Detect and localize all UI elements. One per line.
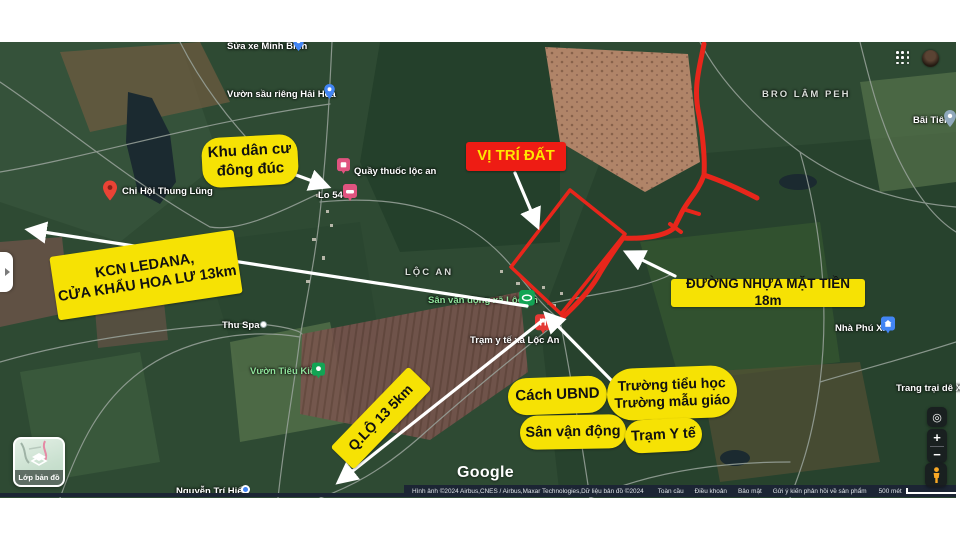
zoom-in-button[interactable]: + bbox=[927, 429, 947, 446]
callout-truong: Trường tiểu học Trường mẫu giáo bbox=[606, 365, 738, 422]
map-screenshot: Sửa xe Minh Bình Vườn sầu riêng Hải Hoa … bbox=[0, 0, 960, 540]
google-logo: Google bbox=[457, 464, 514, 482]
stadium-pin-icon[interactable] bbox=[519, 290, 535, 309]
callout-duong-nhua-label: ĐƯỜNG NHỰA MẶT TIỀN 18m bbox=[671, 276, 865, 310]
area-label-bro-lam-peh: BRO LÂM PEH bbox=[762, 89, 851, 100]
poi-label-chi-hoi[interactable]: Chi Hội Thung Lũng bbox=[122, 186, 213, 197]
area-label-loc-an: LỘC AN bbox=[405, 267, 453, 278]
pegman-button[interactable] bbox=[925, 463, 947, 487]
zoom-control: + − bbox=[927, 429, 947, 463]
callout-tram-y-te-label: Trạm Y tế bbox=[631, 425, 697, 446]
attribution-bar: Hình ảnh ©2024 Airbus,CNES / Airbus,Maxa… bbox=[404, 485, 956, 497]
poi-label-quay-thuoc[interactable]: Quầy thuốc lộc an bbox=[354, 166, 436, 177]
callout-vi-tri-dat-label: VỊ TRÍ ĐẤT bbox=[477, 147, 555, 166]
top-white-band bbox=[0, 0, 960, 42]
scale-label: 500 mét bbox=[879, 488, 902, 495]
callout-khu-dan-cu-line2: đông đúc bbox=[216, 159, 284, 181]
red-pin-icon[interactable] bbox=[103, 180, 117, 201]
callout-khu-dan-cu: Khu dân cư đông đúc bbox=[201, 134, 299, 189]
poi-label-thu-spa[interactable]: Thu Spa bbox=[222, 320, 259, 331]
callout-san-van-dong-label: Sân vận động bbox=[525, 422, 620, 442]
layers-control[interactable]: Lớp bản đồ bbox=[13, 437, 65, 487]
pharmacy-pin-icon[interactable] bbox=[337, 158, 350, 174]
pegman-icon bbox=[931, 467, 942, 484]
compass-icon: ◎ bbox=[932, 411, 942, 424]
garden-pin-icon[interactable] bbox=[324, 84, 335, 99]
hospital-pin-icon[interactable]: H bbox=[535, 314, 551, 334]
bottom-white-band bbox=[0, 498, 960, 540]
link-dieu-khoan[interactable]: Điều khoản bbox=[695, 488, 727, 495]
poi-label-tram-y-te-xa[interactable]: Trạm y tế xã Lộc An bbox=[470, 335, 559, 346]
bai-tien-pin-icon[interactable] bbox=[944, 110, 956, 127]
callout-cach-ubnd: Cách UBND bbox=[507, 375, 607, 415]
imagery-credit: Hình ảnh ©2024 Airbus,CNES / Airbus,Maxa… bbox=[412, 488, 644, 495]
poi-label-vuon-tieu-kieu[interactable]: Vườn Tiêu Kiều bbox=[250, 366, 321, 377]
my-location-button[interactable]: ◎ bbox=[927, 407, 947, 427]
layers-label: Lớp bản đồ bbox=[15, 470, 63, 485]
callout-san-van-dong: Sân vận động bbox=[520, 414, 627, 450]
chevron-right-icon bbox=[5, 268, 10, 276]
house-pin-icon[interactable] bbox=[881, 316, 895, 334]
thu-spa-dot-icon[interactable] bbox=[260, 321, 267, 328]
lodging-pin-icon[interactable] bbox=[343, 184, 357, 201]
poi-label-trang-trai[interactable]: Trang trại dê X-Q bbox=[896, 383, 960, 394]
svg-text:H: H bbox=[539, 318, 546, 329]
poi-label-vuon-sau-rieng[interactable]: Vườn sầu riêng Hải Hoa bbox=[227, 89, 336, 100]
poi-label-nha-phu-xi[interactable]: Nhà Phú Xĩ bbox=[835, 323, 885, 334]
poi-label-lo-54[interactable]: Lo 54 bbox=[318, 190, 343, 201]
account-avatar[interactable] bbox=[922, 50, 939, 67]
google-apps-grid-icon[interactable] bbox=[896, 51, 910, 65]
callout-cach-ubnd-label: Cách UBND bbox=[515, 385, 600, 407]
callout-truong-line2: Trường mẫu giáo bbox=[614, 391, 730, 413]
link-toan-cau[interactable]: Toàn cầu bbox=[658, 488, 684, 495]
link-feedback[interactable]: Gửi ý kiến phản hồi về sản phẩm bbox=[773, 488, 867, 495]
garden-green-pin-icon[interactable] bbox=[312, 362, 325, 379]
callout-duong-nhua: ĐƯỜNG NHỰA MẶT TIỀN 18m bbox=[671, 279, 865, 307]
callout-tram-y-te: Trạm Y tế bbox=[624, 417, 703, 454]
side-panel-toggle[interactable] bbox=[0, 252, 13, 292]
callout-vi-tri-dat: VỊ TRÍ ĐẤT bbox=[466, 142, 566, 171]
link-bao-mat[interactable]: Bảo mật bbox=[738, 488, 762, 495]
scale-bar bbox=[906, 488, 960, 494]
zoom-out-button[interactable]: − bbox=[927, 447, 947, 464]
